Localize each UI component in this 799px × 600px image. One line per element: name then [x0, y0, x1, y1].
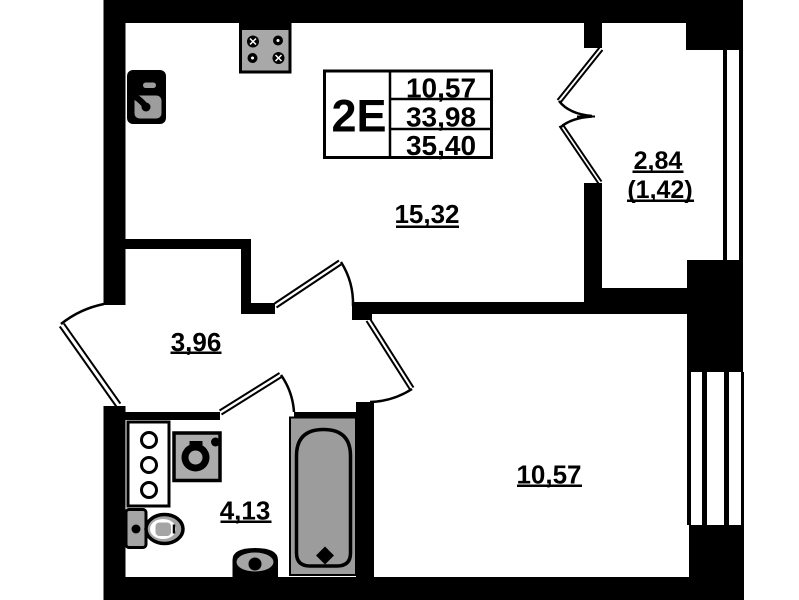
- svg-text:10,57: 10,57: [406, 73, 476, 104]
- svg-text:33,98: 33,98: [406, 102, 476, 133]
- svg-text:2E: 2E: [331, 91, 386, 142]
- svg-text:15,32: 15,32: [394, 199, 459, 229]
- svg-text:35,40: 35,40: [406, 130, 476, 161]
